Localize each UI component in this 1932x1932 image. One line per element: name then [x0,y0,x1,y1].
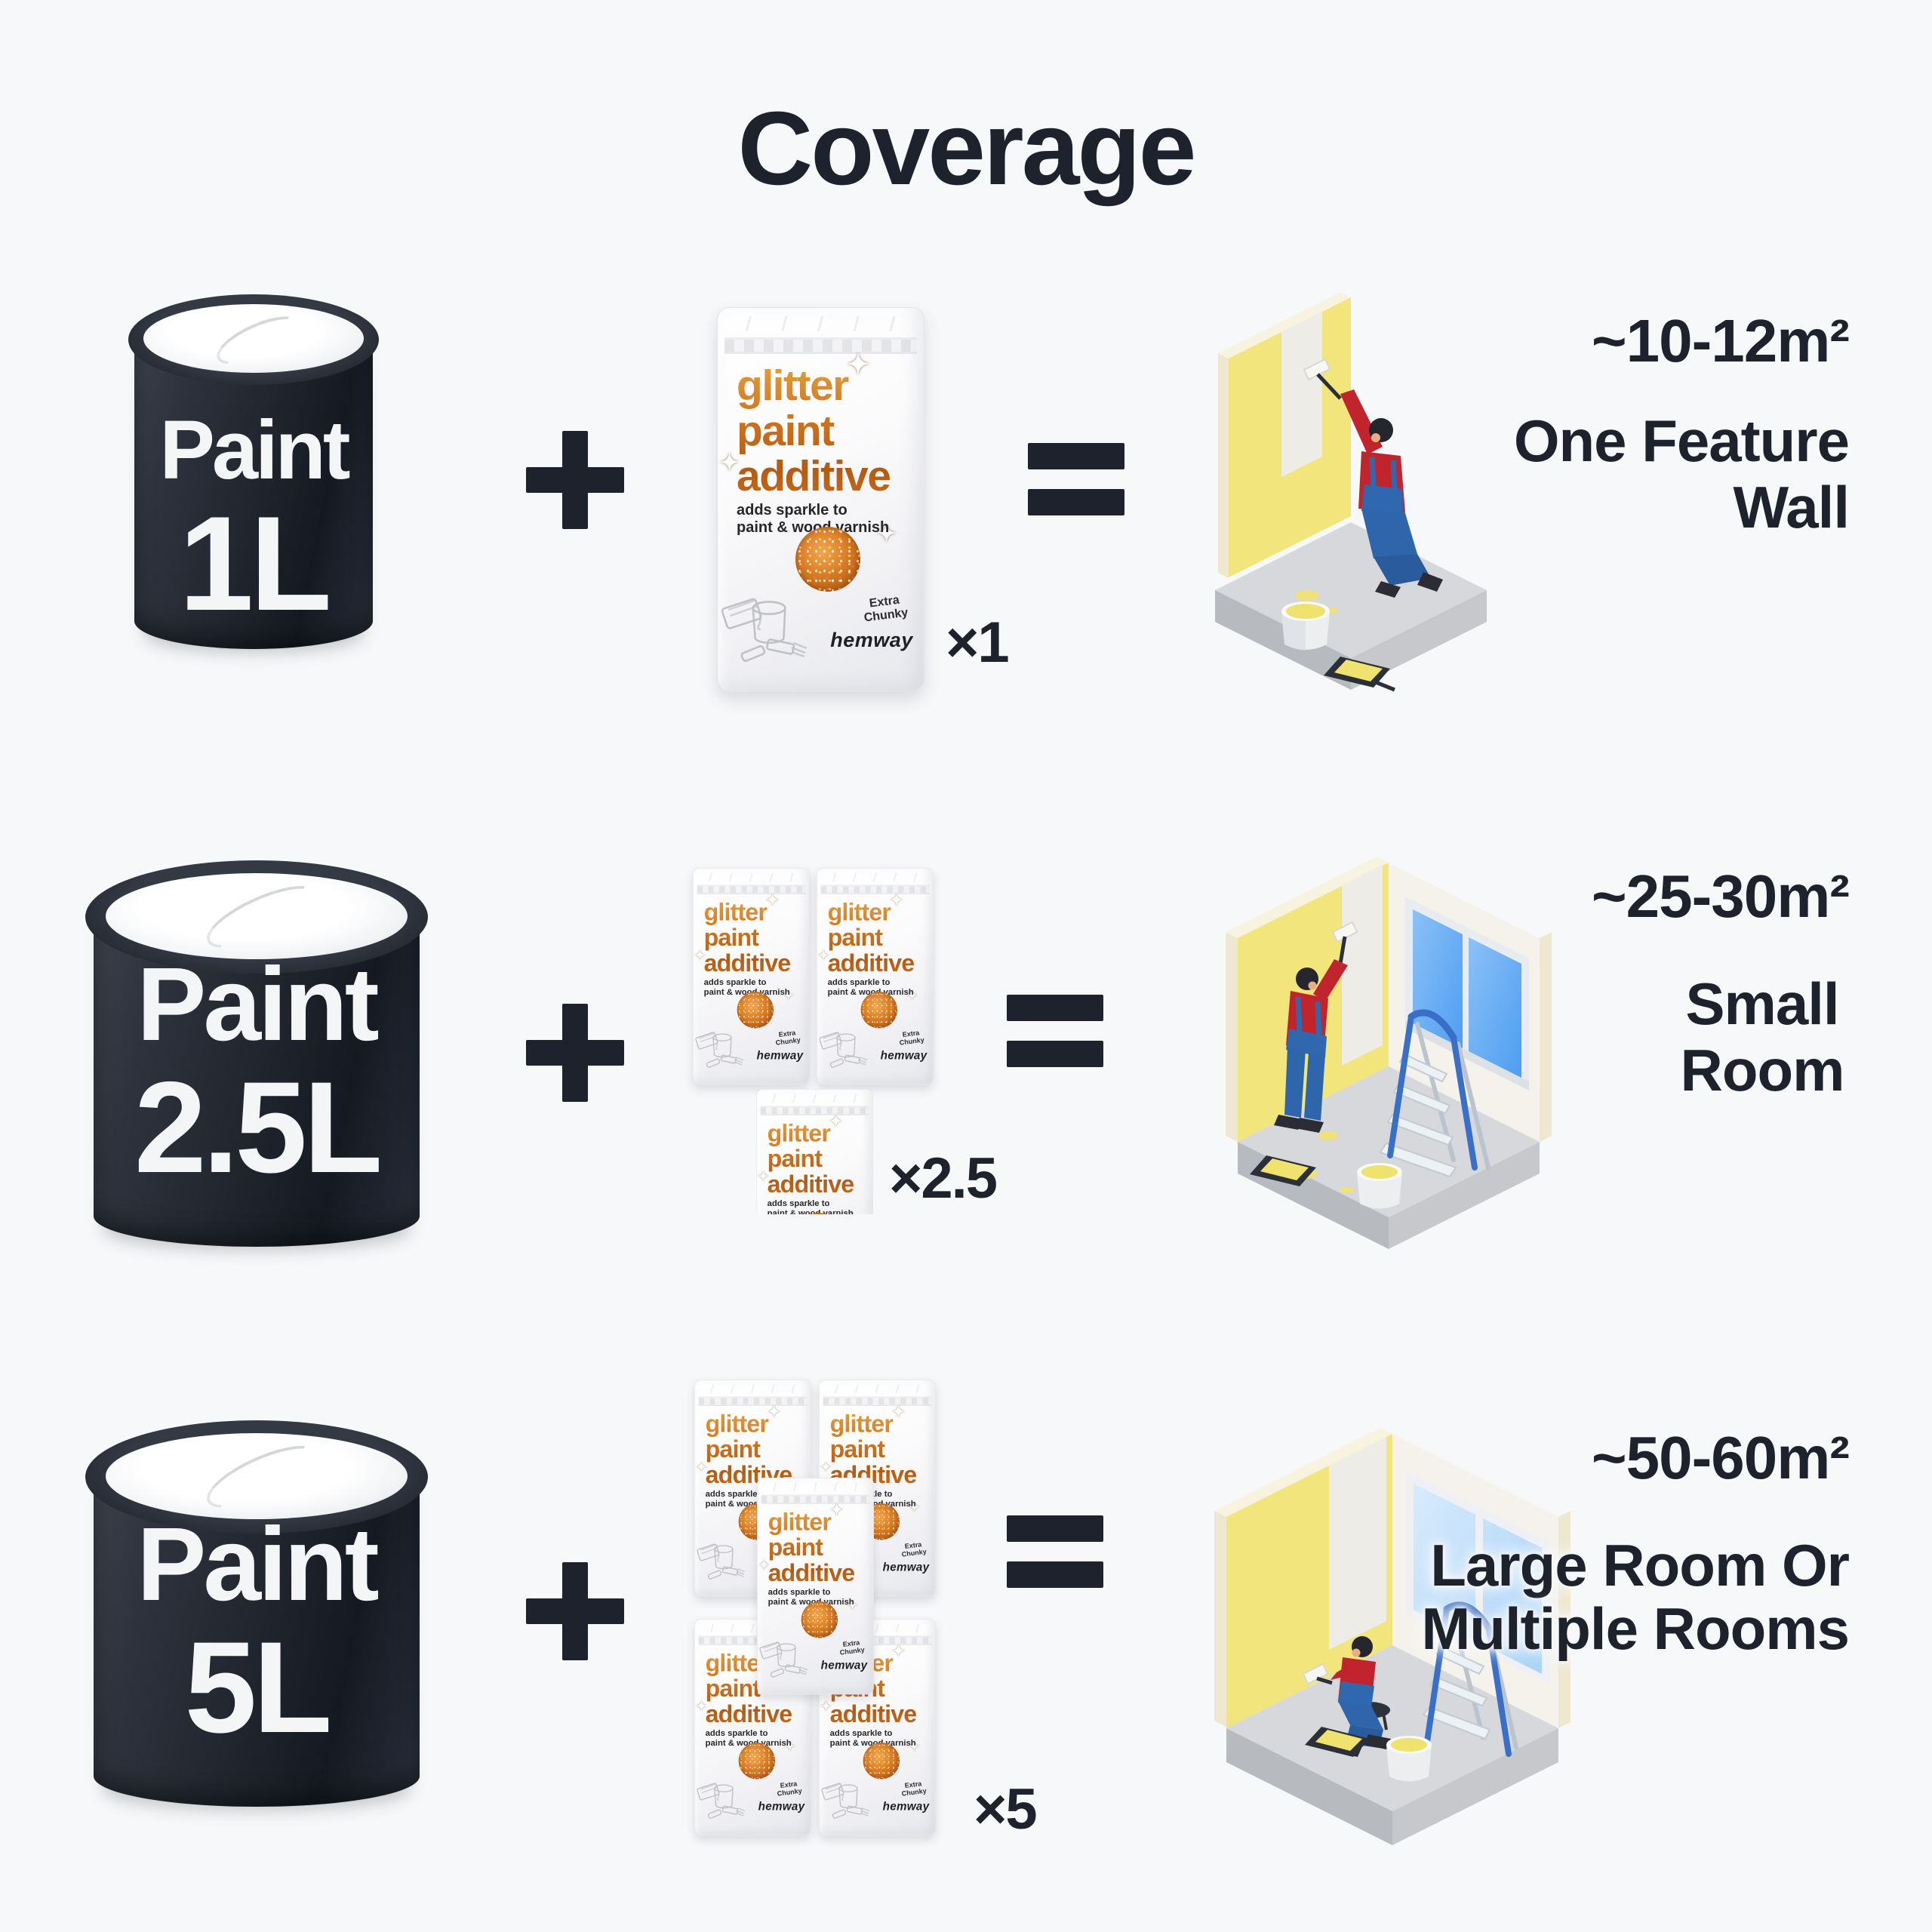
pouch-title-line: paint [828,925,915,951]
pouch-title-line: additive [828,950,915,976]
sparkle-icon: ✦ [890,893,902,908]
glitter-additive-pouch: ✦ ✦ ✦ glitter paint additive adds sparkl… [693,868,810,1085]
pouch-brand: hemway [874,1561,938,1574]
coverage-area-label: ~10-12m² [1472,311,1849,371]
pouch-title-line: paint [830,1437,917,1463]
pouch-title: ✦ ✦ ✦ glitter paint additive [704,900,791,976]
sparkle-icon: ✦ [696,1700,706,1713]
sparkle-icon: ✦ [694,949,704,962]
glitter-sample-swatch [795,527,860,592]
glitter-pouch-face: ✦ ✦ ✦ glitter paint additive adds sparkl… [693,868,810,1084]
plus-icon [526,1004,624,1102]
result-line: One Feature [1472,408,1849,474]
pouch-title-line: paint [706,1437,792,1463]
glitter-additive-pouch: ✦ ✦ ✦ glitter paint additive adds sparkl… [757,1478,874,1695]
coverage-area-label: ~50-60m² [1472,1428,1849,1488]
sparkle-icon: ✦ [696,1461,706,1474]
pouch-crinkle-texture [701,1385,804,1393]
result-line: Wall [1472,474,1849,540]
pouch-multiplier: ×5 [974,1781,1036,1838]
glitter-pouch-face: ✦ ✦ ✦ glitter paint additive adds sparkl… [757,1478,874,1694]
equals-icon [1007,995,1103,1067]
can-size-label: 5L [85,1623,428,1752]
equals-icon [1028,443,1124,515]
glitter-sample-swatch [737,992,774,1028]
pouch-zip-seal [697,885,806,894]
pouch-crinkle-texture [700,873,803,881]
can-size-label: 1L [128,497,379,631]
paint-bucket [1386,1736,1432,1782]
pouch-crinkle-texture [763,1094,866,1103]
glitter-pouch-face: ✦ ✦ ✦ glitter paint additive adds sparkl… [717,307,924,692]
paint-bucket [1281,601,1330,651]
coverage-result-label: Small Room [1649,971,1875,1103]
sparkle-icon: ✦ [829,1114,841,1129]
sparkle-icon: ✦ [820,1461,830,1474]
glitter-sample-swatch [863,1743,900,1779]
pouch-brand: hemway [874,1800,938,1813]
paint-tools-sketch-icon [721,583,814,674]
pouch-tagline-line: adds sparkle to [768,1587,854,1597]
paint-tools-sketch-icon [697,1774,749,1826]
pouch-title-line: additive [737,454,890,499]
pouch-title-line: additive [768,1171,854,1197]
pouch-tagline-line: adds sparkle to [704,977,790,987]
pouch-title: ✦ ✦ ✦ glitter paint additive [830,1411,917,1487]
paint-tools-sketch-icon [821,1774,873,1826]
sparkle-icon: ✦ [758,1171,768,1183]
result-line: Multiple Rooms [1381,1597,1849,1660]
sparkle-icon: ✦ [768,1404,780,1420]
pouch-title-line: additive [768,1560,855,1586]
glitter-additive-pouch: ✦ ✦ ✦ glitter paint additive adds sparkl… [817,868,934,1085]
pouch-brand: hemway [872,1049,936,1062]
pouch-title-line: paint [737,408,890,454]
pouch-title-line: additive [704,950,791,976]
pouch-zip-seal [724,337,917,354]
pouch-crinkle-texture [826,1385,929,1393]
pouch-brand: hemway [749,1800,814,1813]
result-line: Large Room Or [1381,1534,1849,1597]
sparkle-icon: ✦ [818,949,828,962]
can-label: Paint [85,1512,428,1617]
coverage-result-label: One Feature Wall [1472,408,1849,540]
pouch-tagline-line: adds sparkle to [768,1198,854,1208]
glitter-sample-swatch [861,992,897,1028]
paint-can-2-5l: Paint 2.5L [85,860,428,1247]
paint-bucket [1357,1163,1402,1209]
pouch-multiplier: ×2.5 [889,1150,996,1207]
paint-tools-sketch-icon [695,1023,747,1075]
sparkle-icon: ✦ [847,351,869,378]
pouch-title: ✦ ✦ ✦ glitter paint additive [737,363,890,499]
can-label: Paint [85,952,428,1057]
pouch-multiplier: ×1 [946,614,1008,672]
paint-can-1l: Paint 1L [128,294,379,649]
pouch-title-line: additive [830,1701,917,1727]
sparkle-icon: ✦ [892,1404,904,1420]
can-lid [128,294,379,385]
sparkle-icon: ✦ [830,1503,842,1518]
pouch-brand: hemway [815,629,928,652]
can-size-label: 2.5L [85,1063,428,1192]
sparkle-icon: ✦ [766,893,778,908]
pouch-tagline-line: adds sparkle to [828,977,914,987]
glitter-additive-pouch: ✦ ✦ ✦ glitter paint additive adds sparkl… [717,307,924,692]
plus-icon [526,1562,624,1660]
glitter-sample-swatch [739,1743,775,1779]
paint-tools-sketch-icon [697,1535,749,1586]
can-label: Paint [128,409,379,492]
glitter-pouch-face: ✦ ✦ ✦ glitter paint additive adds sparkl… [756,1089,873,1214]
pouch-title-line: paint [768,1535,855,1561]
equals-icon [1007,1515,1103,1588]
pouch-title-line: paint [768,1146,854,1172]
pouch-crinkle-texture [764,1483,867,1491]
pouch-zip-seal [821,885,930,894]
result-line: Room [1649,1037,1875,1103]
sparkle-icon: ✦ [758,1559,768,1572]
result-line: Small [1649,971,1875,1037]
coverage-area-label: ~25-30m² [1472,866,1849,927]
pouch-zip-seal [823,1397,932,1406]
pouch-title: ✦ ✦ ✦ glitter paint additive [706,1411,792,1487]
pouch-title-line: paint [704,925,791,951]
pouch-title: ✦ ✦ ✦ glitter paint additive [828,900,915,976]
glitter-additive-half-pouch: ✦ ✦ ✦ glitter paint additive adds sparkl… [756,1089,873,1214]
pouch-crinkle-texture [729,316,912,331]
glitter-sample-swatch [801,1601,838,1638]
page-title: Coverage [0,89,1932,209]
paint-tools-sketch-icon [759,1633,811,1684]
sparkle-icon: ✦ [720,452,738,475]
pouch-brand: hemway [812,1659,876,1672]
can-paint-surface [143,304,364,373]
paint-can-5l: Paint 5L [85,1420,428,1807]
pouch-tagline-line: adds sparkle to [737,502,889,519]
sparkle-icon: ✦ [892,1644,904,1659]
plus-icon [526,431,624,529]
pouch-zip-seal [761,1495,870,1504]
glitter-pouch-face: ✦ ✦ ✦ glitter paint additive adds sparkl… [817,868,934,1084]
pouch-tagline-line: adds sparkle to [706,1728,792,1738]
paint-tools-sketch-icon [819,1023,871,1075]
pouch-tagline-line: paint & wood varnish [768,1208,854,1214]
pouch-tagline: adds sparkle to paint & wood varnish [768,1198,854,1214]
pouch-zip-seal [761,1106,869,1115]
pouch-brand: hemway [748,1049,812,1062]
coverage-infographic: Coverage Paint 1L ✦ ✦ ✦ glitter paint ad… [0,0,1932,1932]
coverage-result-label: Large Room Or Multiple Rooms [1381,1534,1849,1660]
pouch-zip-seal [699,1397,808,1406]
pouch-crinkle-texture [823,873,927,881]
pouch-tagline-line: adds sparkle to [830,1728,916,1738]
pouch-title: ✦ ✦ ✦ glitter paint additive [768,1509,855,1586]
sparkle-icon: ✦ [820,1700,830,1713]
pouch-title: ✦ ✦ ✦ glitter paint additive [768,1121,854,1197]
pouch-title-line: additive [706,1701,792,1727]
